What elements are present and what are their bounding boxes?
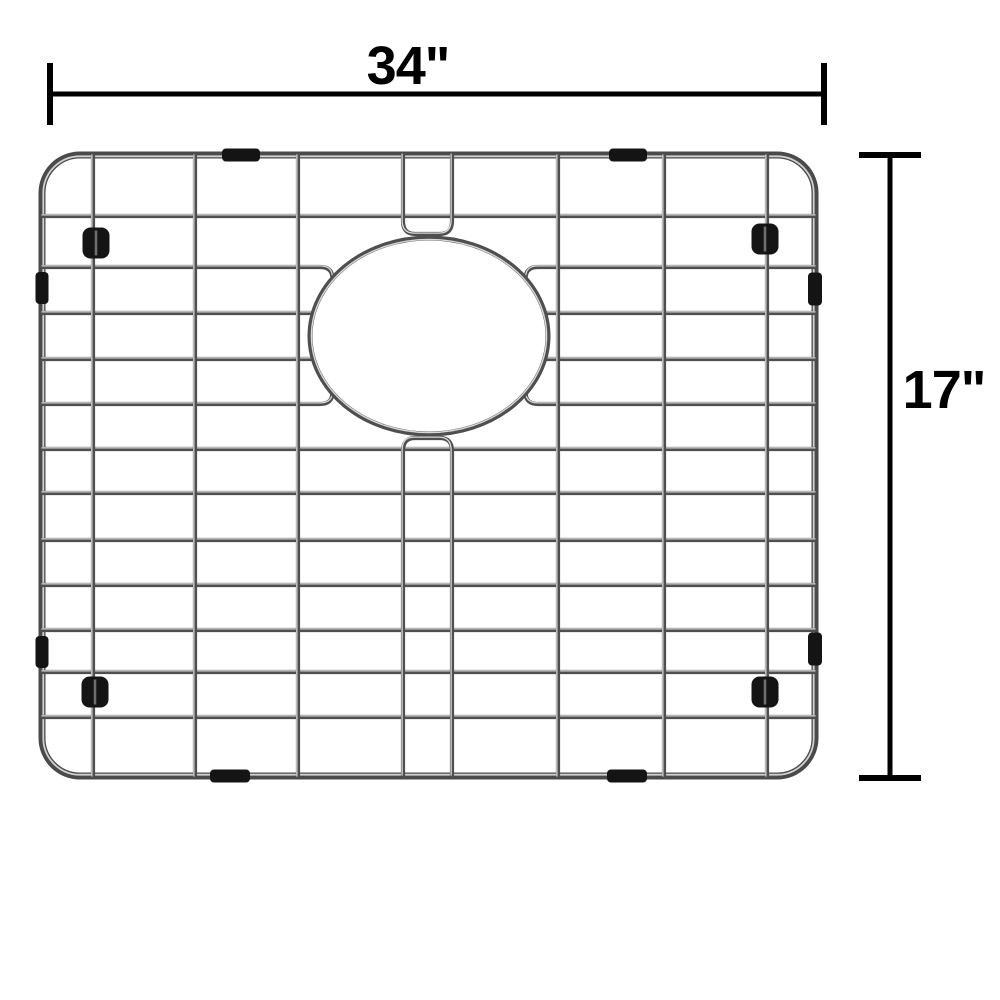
rubber-clip <box>36 636 49 668</box>
rubber-foot <box>83 228 110 259</box>
drain-opening-ring <box>310 238 548 434</box>
rubber-clip <box>222 149 260 162</box>
rubber-clip <box>36 272 49 304</box>
rubber-clip <box>808 273 822 306</box>
rubber-foot <box>752 224 779 255</box>
rubber-clip <box>607 770 647 783</box>
width-dimension-label: 34" <box>367 39 450 93</box>
height-dimension-label: 17" <box>903 363 986 417</box>
height-dimension-line <box>859 155 921 778</box>
rubber-clip <box>808 633 822 666</box>
rubber-foot <box>82 677 109 708</box>
rubber-clip <box>609 149 647 162</box>
rubber-clip <box>210 770 250 783</box>
diagram-canvas: 34" 17" <box>0 0 1000 1000</box>
sink-grid-illustration <box>0 0 1000 1000</box>
rubber-foot <box>752 677 779 708</box>
